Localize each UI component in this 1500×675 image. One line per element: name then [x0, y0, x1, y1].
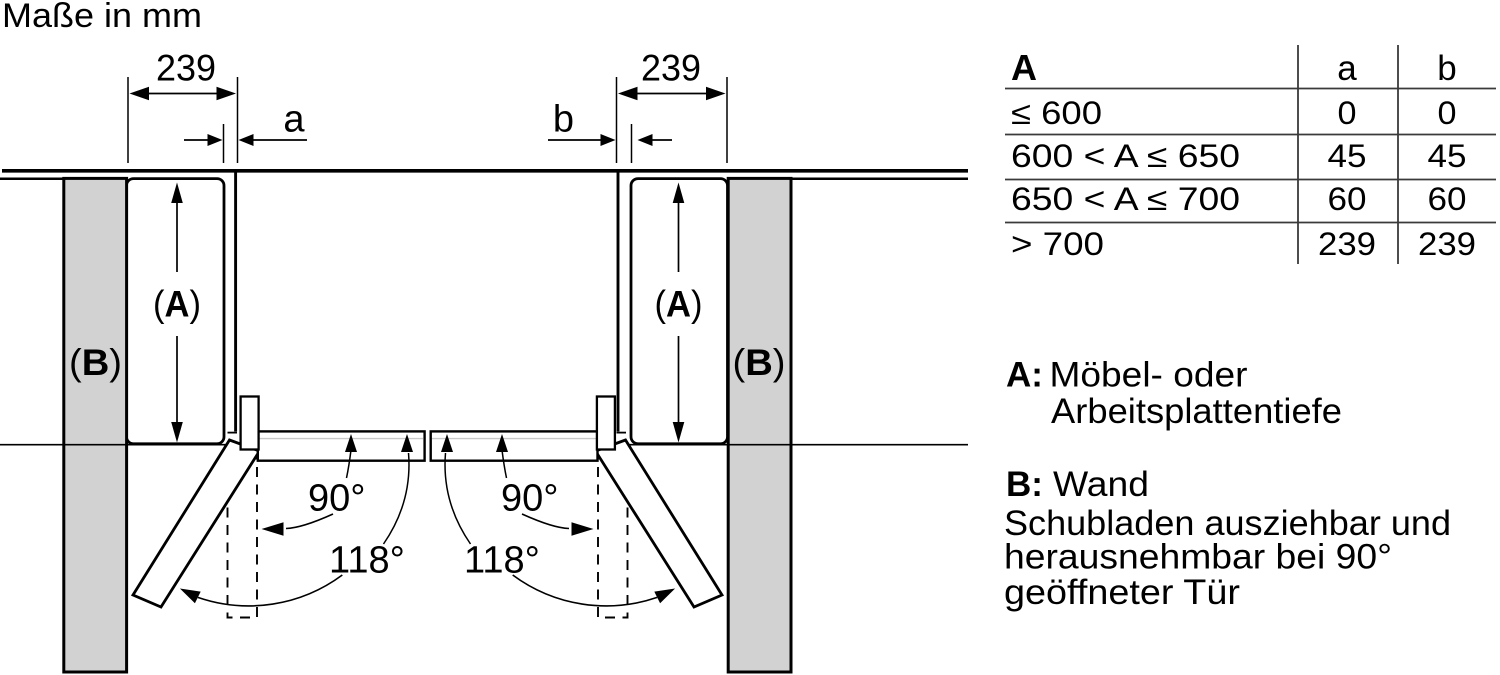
svg-text:90°: 90°	[308, 478, 365, 520]
svg-text:b: b	[1437, 49, 1456, 88]
svg-text:b: b	[553, 99, 574, 141]
svg-text:600 < A ≤ 650: 600 < A ≤ 650	[1011, 138, 1240, 174]
svg-text:239: 239	[641, 48, 701, 89]
svg-text:118°: 118°	[464, 540, 540, 582]
svg-text:45: 45	[1428, 138, 1467, 174]
svg-text:A: A	[1011, 47, 1037, 88]
svg-text:> 700: > 700	[1011, 226, 1104, 262]
svg-text:118°: 118°	[329, 540, 405, 582]
svg-text:B:Wand: B:Wand	[1006, 465, 1149, 504]
svg-text:(B): (B)	[69, 342, 122, 383]
svg-text:A:Möbel- oder: A:Möbel- oder	[1006, 356, 1248, 395]
svg-text:herausnehmbar bei 90°: herausnehmbar bei 90°	[1004, 538, 1392, 577]
svg-text:0: 0	[1438, 95, 1457, 131]
svg-text:(B): (B)	[733, 342, 786, 383]
svg-text:239: 239	[1318, 226, 1376, 262]
svg-text:(A): (A)	[655, 284, 703, 325]
svg-text:a: a	[1337, 49, 1357, 88]
svg-text:(A): (A)	[153, 284, 201, 325]
svg-text:Maße in mm: Maße in mm	[2, 0, 202, 35]
svg-text:0: 0	[1338, 95, 1357, 131]
svg-text:90°: 90°	[501, 478, 558, 520]
svg-text:60: 60	[1428, 181, 1467, 217]
svg-text:Arbeitsplattentiefe: Arbeitsplattentiefe	[1051, 392, 1342, 431]
svg-text:a: a	[283, 99, 305, 141]
svg-text:geöffneter Tür: geöffneter Tür	[1004, 573, 1240, 612]
svg-text:239: 239	[156, 48, 216, 89]
svg-text:60: 60	[1328, 181, 1367, 217]
svg-text:650 < A ≤ 700: 650 < A ≤ 700	[1011, 181, 1240, 217]
svg-text:≤ 600: ≤ 600	[1011, 95, 1102, 131]
svg-text:45: 45	[1328, 138, 1367, 174]
svg-text:239: 239	[1418, 226, 1476, 262]
